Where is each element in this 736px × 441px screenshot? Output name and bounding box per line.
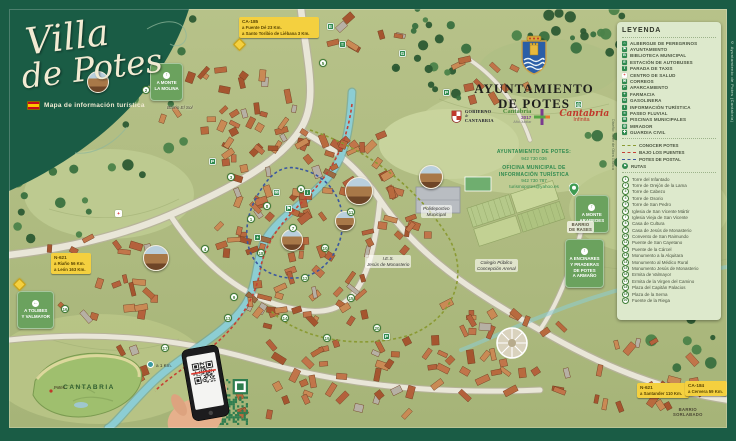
direction-arrow-icon: ↑ xyxy=(588,204,595,211)
service-map-icon: G xyxy=(399,50,406,57)
landmark-number-marker: 19 xyxy=(323,334,331,342)
legend-service-label: AYUNTAMIENTO xyxy=(630,47,667,52)
legend-service-label: APARCAMIENTO xyxy=(630,85,668,90)
direction-badge-text: A MONTE LA MOLINA xyxy=(155,80,179,91)
landmark-name: Fuente de la Riega xyxy=(632,298,670,303)
legend-route-row: CONOCER POTES xyxy=(622,142,716,149)
legend-service-icon: i xyxy=(622,105,627,110)
municipality-block: AYUNTAMIENTO DE POTES xyxy=(449,35,619,111)
illustrated-town-map: CA-185 a Fuente Dé 23 Km. a Santo Toribi… xyxy=(9,9,727,428)
legend-service-label: PASEO FLUVIAL xyxy=(630,111,668,116)
cantabria-shield-icon xyxy=(451,110,462,123)
legend-divider xyxy=(622,138,716,139)
landmark-number-marker: 11 xyxy=(347,208,355,216)
legend-service-label: MIRADOR xyxy=(630,124,653,129)
service-map-icon: P xyxy=(383,333,390,340)
legend-service-icon: ✚ xyxy=(622,130,627,135)
place-label: Polideportivo Municipal xyxy=(421,205,452,218)
rutas-signpost-icon: ⚑ xyxy=(622,163,628,169)
road-sign-text: N-621 a Riaño 56 Km. a León 163 Km. xyxy=(54,255,86,272)
direction-arrow-icon: ← xyxy=(32,300,39,307)
place-label: I.E.S. Jesús de Monasterio xyxy=(365,255,411,268)
service-map-icon: i xyxy=(304,189,311,196)
hand-with-phone xyxy=(137,331,257,428)
direction-badge: ← A TOLIBES Y VALMAYOR xyxy=(17,291,54,329)
legend-panel: LEYENDA ⌂ ALBERGUE DE PEREGRINOS ⚑ AYUNT… xyxy=(617,22,721,320)
legend-service-label: BIBLIOTECA MUNICIPAL xyxy=(630,53,686,58)
route-line-sample xyxy=(622,145,636,146)
service-map-icon: + xyxy=(254,234,261,241)
legend-service-icon: ≈ xyxy=(622,111,627,116)
legend-service-label: FARMACIA xyxy=(630,92,655,97)
legend-route-row: BAJO LOS PUENTES xyxy=(622,149,716,156)
landmark-name: Convento de San Raimundo xyxy=(632,234,689,239)
legend-service-label: CORREOS xyxy=(630,79,654,84)
service-map-icon: ≈ xyxy=(339,41,346,48)
legend-service-icon: G xyxy=(622,98,627,103)
map-subtitle: Mapa de información turística xyxy=(27,101,145,110)
legend-service-icon: B xyxy=(622,53,627,58)
landmark-name: Puente de la Cárcel xyxy=(632,247,672,252)
jubilar-cross-icon xyxy=(534,109,550,125)
inset-town-label: Potes xyxy=(54,385,65,390)
legend-service-icon: ✉ xyxy=(622,79,627,84)
landmark-number: 20 xyxy=(622,297,629,303)
place-label: BARRIO DE RASES xyxy=(567,221,594,233)
legend-landmarks-list: 1 Torre del Infantado 2 Torre de Orejón … xyxy=(622,176,716,304)
tourist-office-email: turismopotes@yahoo.es xyxy=(459,184,609,190)
landmark-number-marker: 10 xyxy=(321,244,329,252)
inset-region-label: CANTABRIA xyxy=(63,384,115,391)
legend-service-icon: ◎ xyxy=(622,124,627,129)
service-map-icon: E xyxy=(327,23,334,30)
cantabria-infinita-logo: Cantabria Infinita xyxy=(559,110,609,124)
road-sign-text: CA-184 a Cervera 59 Km. xyxy=(688,383,723,394)
potes-coat-of-arms xyxy=(518,35,550,75)
road-sign: N-621 a Riaño 56 Km. a León 163 Km. xyxy=(51,253,91,274)
landmark-number-marker: 3 xyxy=(227,173,235,181)
landmark-name: Casa de Jesús de Monasterio xyxy=(632,228,692,233)
landmark-number-marker: 20 xyxy=(373,324,381,332)
legend-service-icon: ⌂ xyxy=(622,41,627,46)
infinita-text-2: Infinita xyxy=(559,118,609,124)
legend-service-label: PISCINAS MUNICIPALES xyxy=(630,117,686,122)
service-map-icon: P xyxy=(209,158,216,165)
legend-service-icon: T xyxy=(622,66,627,71)
tourist-map-poster: { "title": {"line1":"Villa","line2":"de … xyxy=(0,0,736,441)
legend-routes-list: CONOCER POTES BAJO LOS PUENTES POTES DE … xyxy=(622,142,716,163)
landmark-number-marker: 14 xyxy=(281,314,289,322)
legend-landmark-row: 20 Fuente de la Riega xyxy=(622,297,716,303)
direction-badge: ↑ A ENCINARES Y PRADERAS DE POTES A ARMA… xyxy=(565,239,604,288)
landmark-number-marker: 7 xyxy=(289,224,297,232)
landmark-number-marker: 13 xyxy=(224,314,232,322)
cantabria-2017-logo: Cantabria 2017 Año Jubilar xyxy=(503,109,551,125)
legend-divider xyxy=(622,172,716,173)
legend-service-label: INFORMACIÓN TURÍSTICA xyxy=(630,105,691,110)
service-map-icon: ⚑ xyxy=(285,205,292,212)
road-sign-text: CA-185 a Fuente Dé 23 Km. a Santo Toribi… xyxy=(242,19,310,36)
landmark-name: Monumento al Médico Rural xyxy=(632,260,688,265)
landmark-name: Torre de Cabezo xyxy=(632,189,665,194)
direction-arrow-icon: ↑ xyxy=(581,248,588,255)
landmark-name: Iglesia Vieja de San Vicente xyxy=(632,215,688,220)
landmark-name: Puente de San Cayetano xyxy=(632,240,682,245)
route-line-sample xyxy=(622,152,636,153)
direction-badge-text: A TOLIBES Y VALMAYOR xyxy=(22,308,50,319)
landmark-name: Torre del Infantado xyxy=(632,177,670,182)
jubilar-text-3: Año Jubilar xyxy=(503,121,532,125)
direction-badge-text: A ENCINARES Y PRADERAS DE POTES A ARMAÑO xyxy=(570,256,600,279)
place-label: Barrio El Sol xyxy=(167,105,193,111)
contact-block: AYUNTAMIENTO DE POTES: 942 730 036 OFICI… xyxy=(459,149,609,190)
route-line-sample xyxy=(622,159,636,160)
gobierno-text-3: CANTABRIA xyxy=(465,119,494,124)
place-label: BARRIO SORLABADO xyxy=(673,407,703,417)
road-marker-star-icon xyxy=(13,278,26,291)
legend-service-label: GUARDIA CIVIL xyxy=(630,130,666,135)
subtitle-text: Mapa de información turística xyxy=(44,102,145,109)
legend-route-label: CONOCER POTES xyxy=(639,143,679,148)
legend-service-label: GASOLINERA xyxy=(630,98,662,103)
legend-service-icon: E xyxy=(622,60,627,65)
landmark-name: Ermita de la Virgen del Camino xyxy=(632,279,694,284)
landmark-name: Monumento Jesús de Monasterio xyxy=(632,266,699,271)
landmark-number: 5 xyxy=(622,201,629,207)
landmark-name: Casa de Cultura xyxy=(632,221,665,226)
landmark-number-marker: 18 xyxy=(257,249,265,257)
copyright-credit: © Ayuntamiento de Potes (Cantabria) xyxy=(730,40,735,122)
landmark-name: Iglesia de San Vicente Mártir xyxy=(632,209,689,214)
landmark-number-marker: 12 xyxy=(301,274,309,282)
legend-service-icon: P xyxy=(622,85,627,90)
spain-flag-icon xyxy=(27,101,40,110)
municipality-name-line1: AYUNTAMIENTO xyxy=(449,82,619,97)
legend-service-icon: + xyxy=(622,92,627,97)
landmark-name: Torre de San Pedro xyxy=(632,202,671,207)
legend-services-list: ⌂ ALBERGUE DE PEREGRINOS ⚑ AYUNTAMIENTO … xyxy=(622,40,716,136)
legend-service-label: PARADA DE TAXIS xyxy=(630,66,673,71)
landmark-number-marker: 1 xyxy=(247,215,255,223)
legend-route-label: BAJO LOS PUENTES xyxy=(639,150,685,155)
service-map-icon: + xyxy=(115,210,122,217)
design-credit: Diseño: Taller de Obra Gráfica xyxy=(611,119,615,170)
road-sign: N-621 a Santander 110 Km. xyxy=(637,383,689,398)
legend-title: LEYENDA xyxy=(622,27,716,34)
legend-service-icon: ⚑ xyxy=(622,47,627,52)
legend-rutas-label: RUTAS xyxy=(631,164,646,169)
landmark-name: Torre de Orejón de la Lama xyxy=(632,183,687,188)
landmark-name: Monumento a la Alquitara xyxy=(632,253,683,258)
landmark-number: 13 xyxy=(622,253,629,259)
legend-service-icon: + xyxy=(622,73,627,78)
road-sign-text: N-621 a Santander 110 Km. xyxy=(640,385,682,396)
landmark-name: Torre de Osorio xyxy=(632,196,663,201)
landmark-number-marker: 9 xyxy=(230,293,238,301)
place-label: Colegio Público Concepción Arenal xyxy=(475,259,518,272)
service-map-icon: ✉ xyxy=(273,189,280,196)
landmark-number-marker: 16 xyxy=(61,305,69,313)
legend-service-label: ESTACIÓN DE AUTOBUSES xyxy=(630,60,693,65)
landmark-number-marker: 8 xyxy=(263,202,271,210)
landmark-number-marker: 2 xyxy=(142,86,150,94)
legend-divider xyxy=(622,37,716,38)
gobierno-cantabria-logo: GOBIERNO de CANTABRIA xyxy=(451,110,494,123)
landmark-name: Ermita de Valmayor xyxy=(632,272,671,277)
legend-service-label: ALBERGUE DE PEREGRINOS xyxy=(630,41,697,46)
location-pin-icon xyxy=(569,183,579,196)
landmark-number-marker: 5 xyxy=(319,59,327,67)
road-marker-star-icon xyxy=(233,38,246,51)
legend-route-label: POTES DE POSTAL xyxy=(639,157,681,162)
legend-service-icon: ≋ xyxy=(622,117,627,122)
cantabria-inset-map: CANTABRIA Potes xyxy=(23,339,155,425)
landmark-name: Plaza del Capitán Palacios xyxy=(632,285,686,290)
map-title: Villa de Potes xyxy=(15,9,164,93)
road-sign: CA-185 a Fuente Dé 23 Km. a Santo Toribi… xyxy=(239,17,319,38)
landmark-number: 18 xyxy=(622,285,629,291)
inset-town-dot xyxy=(49,389,52,392)
legend-route-row: POTES DE POSTAL xyxy=(622,156,716,163)
road-sign: CA-184 a Cervera 59 Km. xyxy=(685,381,727,396)
legend-service-row: ✚ GUARDIA CIVIL xyxy=(622,129,716,135)
landmark-name: Plaza de la Serna xyxy=(632,292,668,297)
legend-rutas-row: ⚑ RUTAS xyxy=(622,163,716,170)
legend-service-label: CENTRO DE SALUD xyxy=(630,73,676,78)
gobierno-text-1: GOBIERNO xyxy=(465,110,494,115)
logo-row: GOBIERNO de CANTABRIA Cantabria 2017 Año… xyxy=(437,109,623,125)
landmark-number-marker: 15 xyxy=(347,294,355,302)
landmark-number-marker: 4 xyxy=(201,245,209,253)
